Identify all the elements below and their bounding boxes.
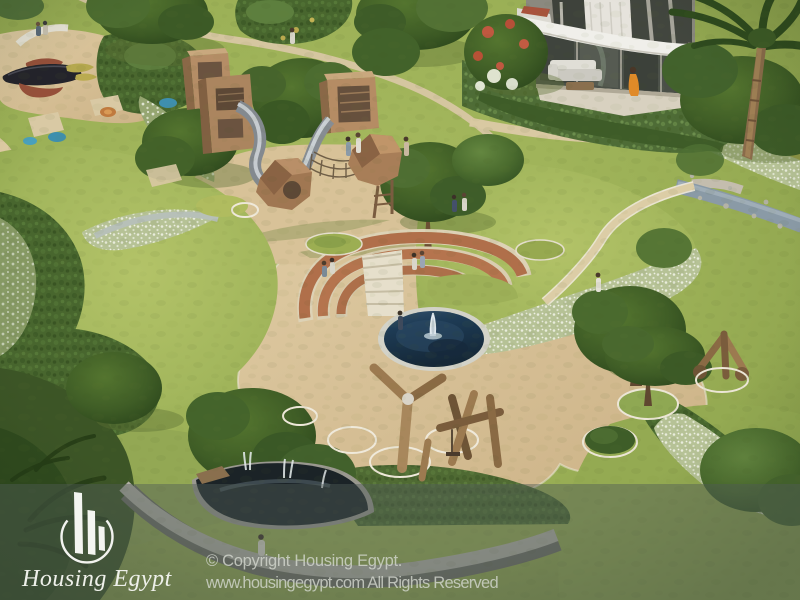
- svg-text:Housing Egypt: Housing Egypt: [21, 566, 173, 592]
- svg-text:© Copyright Housing Egypt.: © Copyright Housing Egypt.: [206, 552, 402, 570]
- svg-text:www.housingegypt.com All Right: www.housingegypt.com All Rights Reserved: [205, 574, 498, 592]
